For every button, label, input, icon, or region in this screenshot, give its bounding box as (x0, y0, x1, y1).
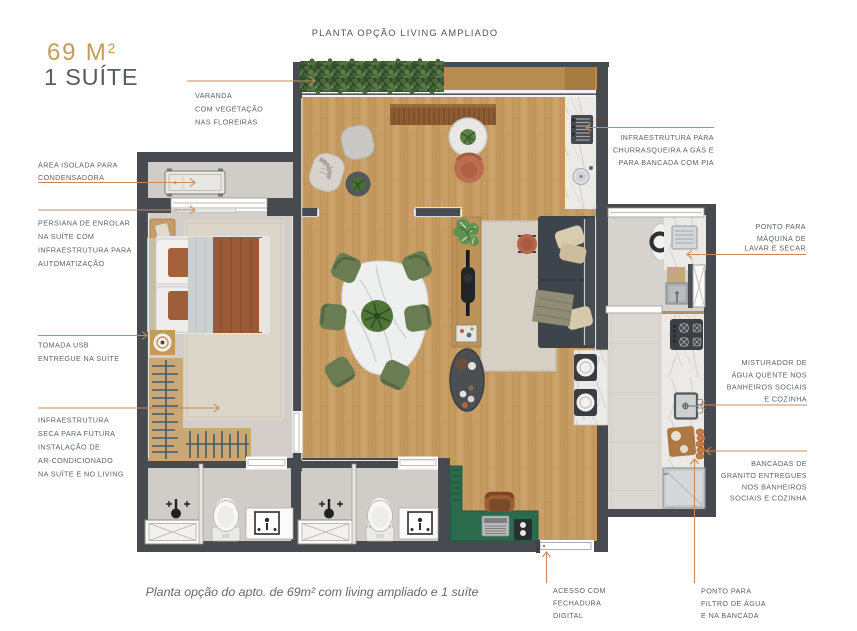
svg-text:DIGITAL: DIGITAL (553, 611, 583, 620)
svg-text:MISTURADOR DE: MISTURADOR DE (742, 358, 808, 367)
svg-text:1 SUÍTE: 1 SUÍTE (44, 64, 138, 90)
svg-text:INFRAESTRUTURA PARA: INFRAESTRUTURA PARA (38, 246, 132, 255)
svg-text:AUTOMATIZAÇÃO: AUTOMATIZAÇÃO (38, 259, 104, 268)
svg-text:FILTRO DE ÁGUA: FILTRO DE ÁGUA (701, 599, 766, 608)
svg-text:VARANDA: VARANDA (195, 91, 232, 100)
svg-text:PONTO PARA: PONTO PARA (756, 222, 806, 231)
svg-text:NA SUÍTE COM: NA SUÍTE COM (38, 232, 94, 241)
svg-text:PARA BANCADA COM PIA: PARA BANCADA COM PIA (619, 158, 714, 167)
svg-text:ÁREA ISOLADA PARA: ÁREA ISOLADA PARA (38, 161, 118, 170)
svg-text:BANHEIROS SOCIAIS: BANHEIROS SOCIAIS (727, 383, 807, 392)
svg-text:E NA BANCADA: E NA BANCADA (701, 611, 759, 620)
svg-text:MÁQUINA DE: MÁQUINA DE (757, 234, 806, 243)
svg-text:LAVAR E SECAR: LAVAR E SECAR (745, 244, 806, 253)
svg-text:SOCIAIS E COZINHA: SOCIAIS E COZINHA (730, 494, 807, 503)
svg-text:ENTREGUE NA SUÍTE: ENTREGUE NA SUÍTE (38, 354, 119, 363)
svg-text:BANCADAS DE: BANCADAS DE (751, 459, 807, 468)
svg-text:SECA PARA FUTURA: SECA PARA FUTURA (38, 429, 115, 438)
svg-text:PLANTA OPÇÃO LIVING AMPLIADO: PLANTA OPÇÃO LIVING AMPLIADO (312, 28, 499, 38)
svg-text:69 M2: 69 M2 (47, 39, 117, 66)
svg-text:NA SUÍTE E NO LIVING: NA SUÍTE E NO LIVING (38, 470, 124, 479)
svg-text:INFRAESTRUTURA: INFRAESTRUTURA (38, 416, 109, 425)
svg-text:ACESSO COM: ACESSO COM (553, 586, 606, 595)
svg-text:CONDENSADORA: CONDENSADORA (38, 173, 104, 182)
svg-text:CHURRASQUEIRA A GÁS E: CHURRASQUEIRA A GÁS E (613, 146, 714, 155)
svg-text:NAS FLOREIRAS: NAS FLOREIRAS (195, 118, 258, 127)
svg-text:COM VEGETAÇÃO: COM VEGETAÇÃO (195, 105, 263, 114)
svg-text:ÁGUA QUENTE NOS: ÁGUA QUENTE NOS (732, 371, 808, 380)
svg-text:NOS BANHEIROS: NOS BANHEIROS (742, 483, 807, 492)
svg-text:PONTO PARA: PONTO PARA (701, 587, 751, 596)
svg-text:TOMADA USB: TOMADA USB (38, 341, 89, 350)
svg-text:AR-CONDICIONADO: AR-CONDICIONADO (38, 456, 113, 465)
svg-text:INSTALAÇÃO DE: INSTALAÇÃO DE (38, 443, 100, 452)
svg-text:INFRAESTRUTURA PARA: INFRAESTRUTURA PARA (620, 133, 714, 142)
svg-text:PERSIANA DE ENROLAR: PERSIANA DE ENROLAR (38, 219, 130, 228)
svg-text:FECHADURA: FECHADURA (553, 599, 601, 608)
svg-text:Planta opção do apto. de 69m²: Planta opção do apto. de 69m² com living… (146, 585, 479, 599)
svg-text:GRANITO ENTREGUES: GRANITO ENTREGUES (721, 471, 807, 480)
svg-text:E COZINHA: E COZINHA (764, 395, 807, 404)
